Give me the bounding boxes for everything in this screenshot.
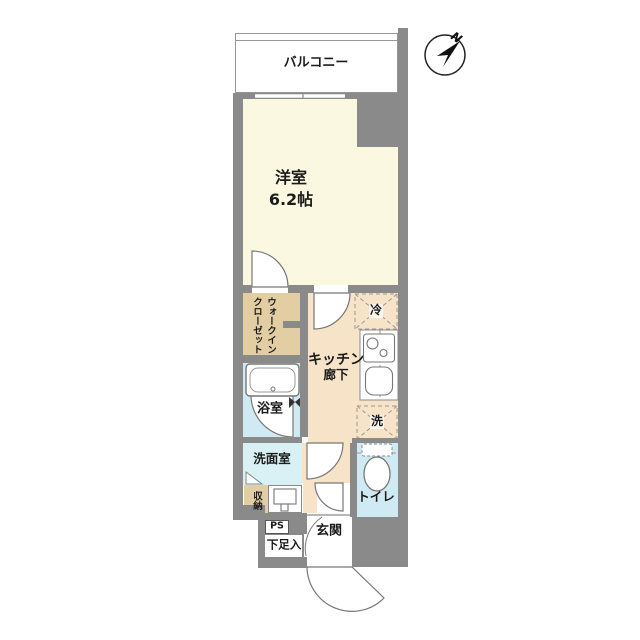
toilet-icon — [357, 444, 398, 491]
door-arc-closet — [252, 251, 288, 287]
shoe-cabinet-label: 下足入 — [267, 538, 302, 551]
wall — [300, 293, 308, 355]
wall — [262, 557, 307, 568]
washroom-door-mark — [246, 472, 262, 484]
balcony-window — [255, 93, 345, 99]
wall — [357, 93, 398, 147]
toilet-label: トイレ — [357, 490, 395, 504]
washbasin-icon — [274, 489, 296, 511]
wall — [352, 438, 398, 443]
wall — [348, 285, 398, 293]
western-room-label: 洋室 — [275, 169, 307, 187]
storage-label: 収納 — [250, 488, 263, 512]
wall — [345, 93, 357, 99]
bathroom-label: 浴室 — [257, 403, 283, 418]
wall — [350, 443, 357, 517]
wall — [398, 28, 408, 567]
kitchen-label: キッチン — [308, 352, 364, 368]
wall — [243, 355, 308, 363]
wall — [243, 437, 302, 443]
stove-icon — [364, 334, 395, 362]
door-arc-washroom — [307, 443, 343, 479]
kitchen-counter — [360, 330, 398, 400]
wall — [300, 363, 308, 437]
wall — [288, 285, 314, 293]
washroom-label: 洗面室 — [253, 452, 291, 466]
compass: N — [425, 29, 465, 75]
sink-icon — [366, 367, 393, 395]
wall — [283, 321, 300, 328]
door-arc-corridor-entrance — [315, 483, 343, 511]
floor-plan: N バルコニー 洋室 6.2帖 ウォークイン クローゼット キッチン 廊下 浴室… — [0, 0, 640, 640]
bathtub-icon — [246, 364, 299, 396]
balcony-label: バルコニー — [284, 57, 349, 72]
western-room-size-label: 6.2帖 — [269, 191, 313, 209]
door-arc-entrance — [307, 567, 384, 611]
wall — [352, 517, 398, 567]
wall — [289, 520, 307, 534]
walk-in-closet-label: ウォークイン クローゼット — [247, 295, 277, 355]
plan-linework: N — [0, 0, 640, 640]
hallway-label: 廊下 — [323, 368, 348, 382]
pipe-space-label: PS — [270, 522, 284, 533]
wall — [233, 93, 243, 520]
washer-label: 洗 — [370, 415, 384, 429]
wall — [243, 93, 255, 99]
door-arc-room-corridor — [314, 293, 350, 329]
wall — [243, 285, 252, 293]
refrigerator-label: 冷 — [369, 304, 383, 318]
entrance-label: 玄関 — [316, 525, 342, 540]
